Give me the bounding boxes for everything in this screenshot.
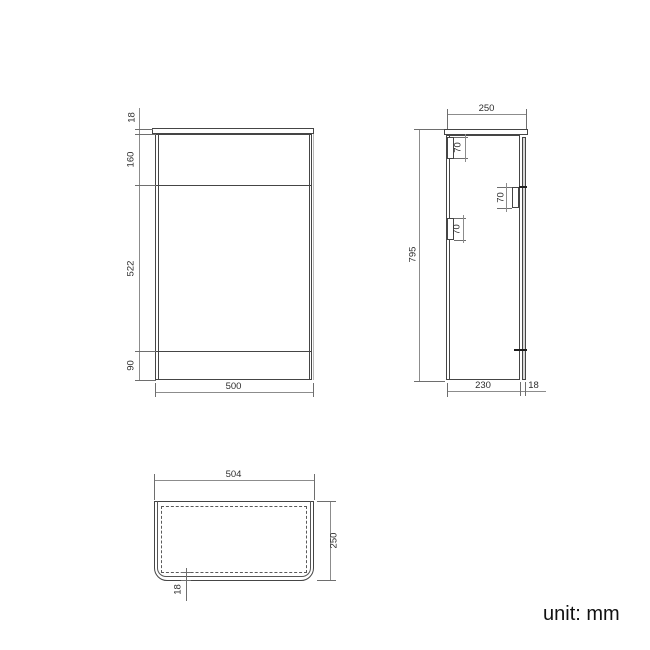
front-tick-bottom bbox=[135, 380, 156, 381]
side-bracket-right bbox=[512, 187, 519, 209]
side-dim-18: 18 bbox=[517, 380, 551, 391]
front-width-tick-left bbox=[155, 383, 156, 397]
bracket3-dimension-line bbox=[463, 215, 464, 243]
front-dim-18: 18 bbox=[126, 103, 137, 133]
front-height-dimension-line bbox=[139, 108, 140, 380]
top-width-dimension-line bbox=[154, 480, 314, 481]
unit-label: unit: mm bbox=[543, 603, 620, 626]
front-dim-90: 90 bbox=[126, 351, 137, 381]
front-plinth-divider bbox=[156, 351, 311, 353]
top-cabinet-hidden-outline bbox=[161, 506, 308, 573]
front-tick-counter-bottom bbox=[135, 134, 156, 135]
front-right-panel-line bbox=[309, 135, 310, 379]
side-height-dimension-line bbox=[419, 129, 420, 382]
front-tick-door bbox=[135, 351, 156, 352]
side-depth-dimension-line bbox=[447, 114, 527, 115]
top-dim-250: 250 bbox=[328, 526, 339, 556]
side-cabinet-body bbox=[446, 135, 521, 381]
bracket1-dimension-line bbox=[465, 134, 466, 163]
side-dim-250: 250 bbox=[470, 103, 504, 114]
side-bottom-dimension-line bbox=[447, 391, 546, 392]
top-width-tick-right bbox=[314, 474, 315, 500]
front-left-panel-line bbox=[158, 135, 159, 379]
side-depth-tick-right bbox=[526, 109, 527, 129]
side-dim-795: 795 bbox=[407, 240, 418, 270]
front-dim-500: 500 bbox=[217, 381, 251, 392]
side-back-panel-line bbox=[449, 136, 450, 380]
side-height-ext-bottom bbox=[414, 381, 445, 382]
front-tick-drawer bbox=[135, 185, 156, 186]
side-door-slab bbox=[522, 137, 527, 380]
side-dim-70-right: 70 bbox=[495, 183, 506, 213]
top-depth-ext-bottom bbox=[317, 580, 336, 581]
front-dim-522: 522 bbox=[126, 253, 137, 283]
top-width-tick-left bbox=[154, 474, 155, 500]
side-depth-tick-left bbox=[447, 109, 448, 129]
front-width-tick-right bbox=[313, 383, 314, 397]
side-height-ext-top bbox=[414, 129, 444, 130]
front-drawer-divider bbox=[156, 185, 311, 187]
front-dim-160: 160 bbox=[126, 145, 137, 175]
top-depth-ext-top bbox=[317, 501, 336, 502]
top-dim-18: 18 bbox=[173, 574, 184, 604]
front-right-edge-shade bbox=[313, 134, 314, 380]
side-door-gap-top bbox=[519, 186, 528, 188]
side-bottom-tick-left bbox=[447, 383, 448, 397]
top-dim-504: 504 bbox=[217, 469, 251, 480]
side-dim-230: 230 bbox=[466, 380, 500, 391]
side-dim-70-bottom-left: 70 bbox=[451, 214, 462, 244]
front-cabinet-body bbox=[155, 134, 312, 381]
technical-drawing-canvas: 18 160 522 90 500 250 70 bbox=[0, 0, 650, 650]
side-dim-70-top-left: 70 bbox=[453, 133, 464, 163]
side-door-gap-bottom bbox=[514, 349, 527, 351]
top-edge-tick-upper bbox=[181, 572, 191, 573]
front-width-dimension-line bbox=[155, 392, 313, 393]
